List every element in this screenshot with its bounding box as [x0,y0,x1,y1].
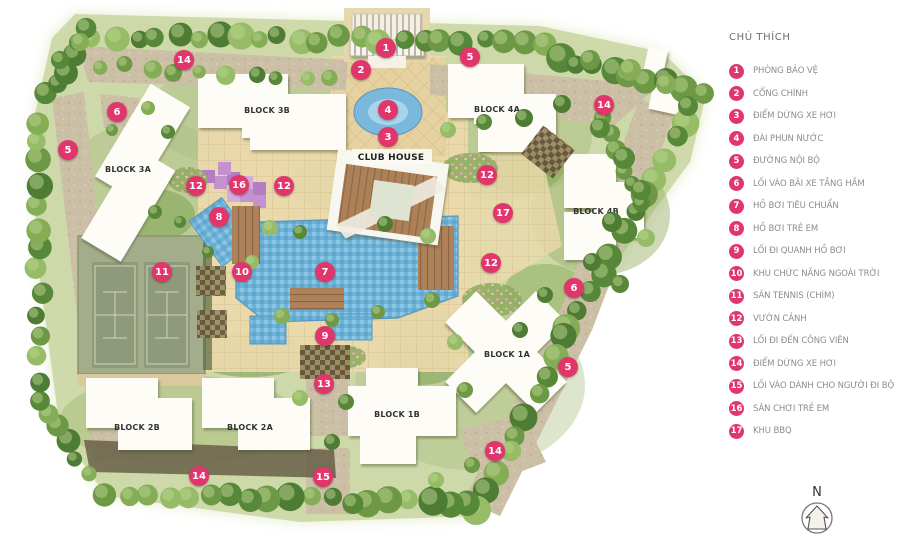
block-2a-label: BLOCK 2A [227,423,274,432]
map-marker-number: 6 [114,107,121,118]
map-marker-number: 15 [316,472,330,483]
map-marker-number: 12 [484,258,498,269]
map-marker: 10 [232,262,252,282]
legend-item-label: LỐI ĐI QUANH HỒ BƠI [753,246,846,256]
site-plan-page: BLOCK 3A BLOCK 3B BLOCK 4A BLOCK 4B BLOC… [0,0,900,542]
legend-item-label: KHU CHỨC NĂNG NGOÀI TRỜI [753,269,879,279]
map-marker-number: 10 [235,267,249,278]
trellis [196,266,226,296]
map-marker: 3 [378,127,398,147]
legend-item: 13 LỐI ĐI ĐẾN CÔNG VIÊN [729,330,900,353]
legend-item-number: 10 [729,266,744,281]
legend-item-label: ĐÀI PHUN NƯỚC [753,134,823,144]
map-marker-number: 2 [358,65,365,76]
legend-item-label: SÂN TENNIS (CHÌM) [753,291,834,301]
legend-item: 6 LỐI VÀO BÃI XE TẦNG HẦM [729,173,900,196]
legend-item-label: HỒ BƠI TRẺ EM [753,224,818,234]
legend: CHÚ THÍCH 1 PHÒNG BẢO VỆ 2 CỔNG CHÍNH 3 … [729,32,900,443]
map-marker-number: 5 [565,362,572,373]
legend-item-number: 6 [729,176,744,191]
map-marker: 2 [351,60,371,80]
map-marker: 1 [376,38,396,58]
legend-item-number: 1 [729,64,744,79]
map-marker: 5 [58,140,78,160]
map-marker: 12 [481,253,501,273]
legend-item: 16 SÂN CHƠI TRẺ EM [729,398,900,421]
trellis [197,310,227,338]
legend-item-number: 3 [729,109,744,124]
legend-item: 2 CỔNG CHÍNH [729,83,900,106]
map-marker: 14 [485,441,505,461]
legend-item: 4 ĐÀI PHUN NƯỚC [729,128,900,151]
legend-item-label: LỐI ĐI ĐẾN CÔNG VIÊN [753,336,849,346]
legend-item-label: LỐI VÀO DÀNH CHO NGƯỜI ĐI BỘ [753,381,894,391]
legend-item-number: 7 [729,199,744,214]
map-marker: 13 [314,374,334,394]
compass: N [793,482,841,540]
compass-north-label: N [812,485,822,500]
map-marker-number: 5 [467,52,474,63]
map-marker-number: 5 [65,145,72,156]
legend-item: 9 LỐI ĐI QUANH HỒ BƠI [729,240,900,263]
map-marker: 6 [107,102,127,122]
legend-item-label: KHU BBQ [753,426,792,436]
map-marker: 5 [558,357,578,377]
legend-item: 14 ĐIỂM DỪNG XE HƠI [729,353,900,376]
legend-item-number: 4 [729,131,744,146]
legend-item-label: PHÒNG BẢO VỆ [753,66,818,76]
legend-item: 5 ĐƯỜNG NỘI BỘ [729,150,900,173]
legend-item: 11 SÂN TENNIS (CHÌM) [729,285,900,308]
map-marker: 7 [315,262,335,282]
legend-item: 8 HỒ BƠI TRẺ EM [729,218,900,241]
map-marker-number: 11 [155,267,169,278]
map-marker: 11 [152,262,172,282]
map-marker: 8 [209,207,229,227]
map-marker: 12 [186,176,206,196]
map-marker: 12 [477,165,497,185]
map-marker-number: 8 [216,212,223,223]
block-3b-label: BLOCK 3B [244,106,290,115]
legend-item-number: 5 [729,154,744,169]
map-marker: 15 [313,467,333,487]
legend-item: 1 PHÒNG BẢO VỆ [729,60,900,83]
map-marker: 9 [315,326,335,346]
map-marker-number: 14 [488,446,502,457]
map-marker: 5 [460,47,480,67]
block-4a-label: BLOCK 4A [474,105,521,114]
map-marker: 16 [229,175,249,195]
map-marker-number: 12 [480,170,494,181]
block-1b-label: BLOCK 1B [374,410,420,419]
legend-item-label: ĐIỂM DỪNG XE HƠI [753,359,836,369]
map-marker-number: 4 [385,105,392,116]
legend-item: 7 HỒ BƠI TIÊU CHUẨN [729,195,900,218]
map-marker-number: 14 [597,100,611,111]
legend-item: 3 ĐIỂM DỪNG XE HƠI [729,105,900,128]
map-marker: 6 [564,278,584,298]
legend-item-number: 2 [729,86,744,101]
legend-item-label: SÂN CHƠI TRẺ EM [753,404,829,414]
legend-item-label: HỒ BƠI TIÊU CHUẨN [753,201,839,211]
club-house-label: CLUB HOUSE [358,153,424,163]
map-marker-number: 9 [322,331,329,342]
map-marker-number: 16 [232,180,246,191]
legend-item-number: 13 [729,334,744,349]
legend-item-number: 16 [729,401,744,416]
legend-item-label: ĐƯỜNG NỘI BỘ [753,156,820,166]
map-marker-number: 14 [177,55,191,66]
block-3a-label: BLOCK 3A [105,165,152,174]
map-marker: 14 [594,95,614,115]
map-marker-number: 7 [322,267,329,278]
map-marker: 17 [493,203,513,223]
legend-item-label: LỐI VÀO BÃI XE TẦNG HẦM [753,179,865,189]
legend-item: 10 KHU CHỨC NĂNG NGOÀI TRỜI [729,263,900,286]
map-marker-number: 17 [496,208,510,219]
map-marker-number: 1 [383,43,390,54]
map-marker-number: 12 [277,181,291,192]
map-marker-number: 3 [385,132,392,143]
legend-item-number: 17 [729,424,744,439]
block-2b-label: BLOCK 2B [114,423,160,432]
legend-item-number: 12 [729,311,744,326]
legend-item: 17 KHU BBQ [729,420,900,443]
map-marker-number: 14 [192,471,206,482]
legend-item-label: VƯỜN CẢNH [753,314,807,324]
map-marker-number: 13 [317,379,331,390]
map-marker-number: 12 [189,181,203,192]
legend-item-number: 15 [729,379,744,394]
legend-item-number: 9 [729,244,744,259]
legend-item-label: ĐIỂM DỪNG XE HƠI [753,111,836,121]
map-marker: 12 [274,176,294,196]
map-marker: 14 [189,466,209,486]
map-marker: 4 [378,100,398,120]
legend-item: 15 LỐI VÀO DÀNH CHO NGƯỜI ĐI BỘ [729,375,900,398]
legend-item-number: 11 [729,289,744,304]
legend-item-number: 14 [729,356,744,371]
legend-title: CHÚ THÍCH [729,32,900,43]
legend-item-number: 8 [729,221,744,236]
map-marker: 14 [174,50,194,70]
tennis-court [78,236,212,386]
legend-item: 12 VƯỜN CẢNH [729,308,900,331]
block-1a-label: BLOCK 1A [484,350,531,359]
legend-item-label: CỔNG CHÍNH [753,89,808,99]
map-marker-number: 6 [571,283,578,294]
